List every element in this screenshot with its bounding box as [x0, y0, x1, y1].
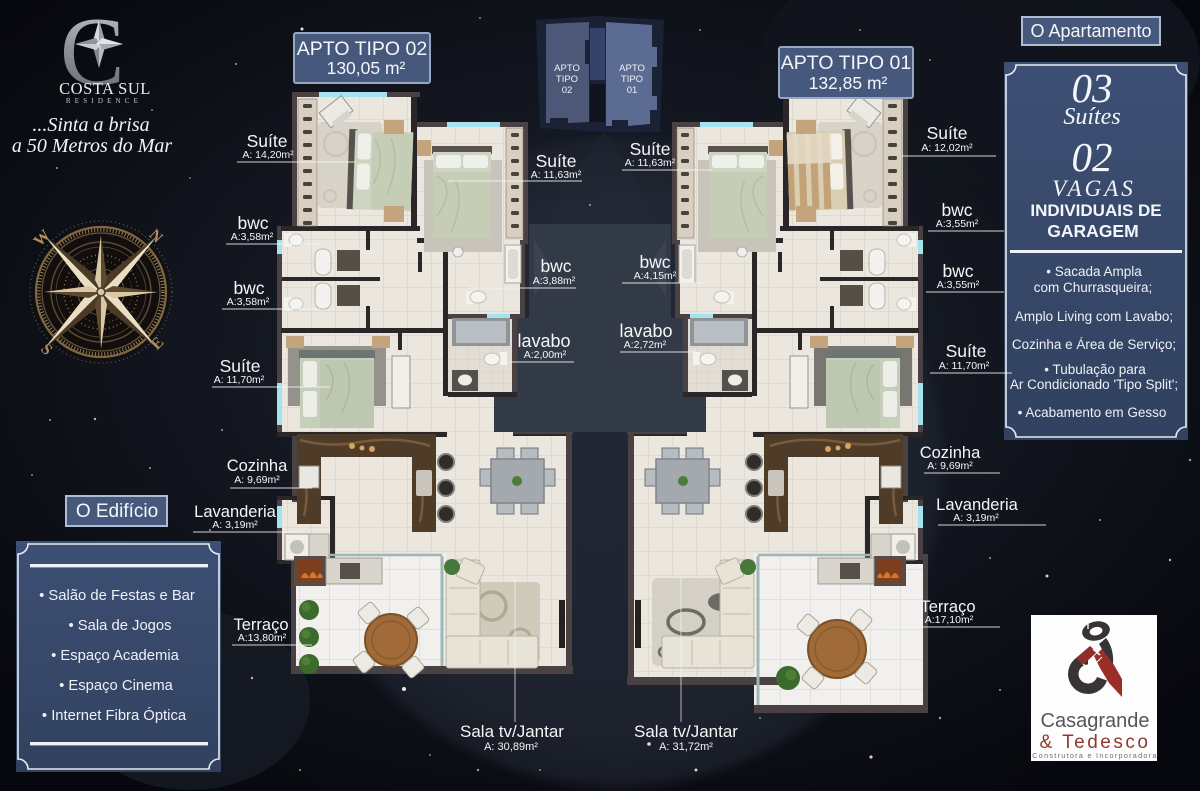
svg-text:• Internet Fibra Óptica: • Internet Fibra Óptica: [42, 707, 187, 724]
svg-text:Cozinha e Área de Serviço;: Cozinha e Área de Serviço;: [1012, 337, 1176, 352]
svg-text:COSTA SUL: COSTA SUL: [59, 79, 151, 98]
svg-text:A:17,10m²: A:17,10m²: [925, 614, 974, 626]
svg-text:APTO: APTO: [619, 63, 645, 74]
svg-text:A: 9,69m²: A: 9,69m²: [234, 474, 280, 486]
svg-text:lavabo: lavabo: [619, 321, 672, 341]
svg-text:TIPO: TIPO: [556, 74, 578, 85]
svg-text:APTO TIPO 01: APTO TIPO 01: [781, 52, 911, 74]
svg-text:02: 02: [562, 85, 573, 96]
svg-text:• Acabamento em Gesso: • Acabamento em Gesso: [1018, 405, 1167, 420]
svg-text:• Sala de Jogos: • Sala de Jogos: [68, 618, 171, 634]
svg-text:TIPO: TIPO: [621, 74, 643, 85]
svg-text:bwc: bwc: [233, 278, 264, 298]
svg-text:A:3,58m²: A:3,58m²: [227, 296, 270, 308]
svg-text:INDIVIDUAIS DE: INDIVIDUAIS DE: [1030, 201, 1161, 220]
svg-text:A:4,15m²: A:4,15m²: [634, 270, 677, 282]
svg-text:01: 01: [627, 85, 638, 96]
svg-text:Ar Condicionado 'Tipo Split';: Ar Condicionado 'Tipo Split';: [1010, 377, 1178, 392]
svg-text:APTO: APTO: [554, 63, 580, 74]
svg-text:A: 11,70m²: A: 11,70m²: [214, 374, 265, 386]
svg-text:GARAGEM: GARAGEM: [1047, 221, 1138, 241]
svg-text:A: 14,20m²: A: 14,20m²: [242, 149, 294, 161]
svg-text:APTO TIPO 02: APTO TIPO 02: [297, 38, 427, 60]
svg-text:O Apartamento: O Apartamento: [1030, 21, 1151, 41]
svg-text:...Sinta a brisa: ...Sinta a brisa: [32, 114, 149, 136]
svg-text:• Salão de Festas e Bar: • Salão de Festas e Bar: [39, 588, 195, 604]
svg-text:Casagrande: Casagrande: [1041, 710, 1150, 732]
svg-text:• Espaço Academia: • Espaço Academia: [51, 648, 180, 664]
svg-text:bwc: bwc: [237, 213, 268, 233]
svg-text:A:3,55m²: A:3,55m²: [937, 279, 980, 291]
svg-text:Suíte: Suíte: [536, 151, 577, 171]
svg-text:bwc: bwc: [941, 200, 972, 220]
svg-text:A:3,55m²: A:3,55m²: [936, 218, 979, 230]
svg-text:Cozinha: Cozinha: [227, 457, 288, 475]
svg-text:Suíte: Suíte: [946, 341, 987, 361]
svg-text:A:3,88m²: A:3,88m²: [533, 275, 576, 287]
svg-text:bwc: bwc: [540, 256, 571, 276]
svg-text:132,85 m²: 132,85 m²: [809, 73, 888, 93]
svg-text:A: 3,19m²: A: 3,19m²: [212, 519, 258, 531]
svg-text:Sala tv/Jantar: Sala tv/Jantar: [460, 722, 564, 741]
svg-text:Suítes: Suítes: [1063, 104, 1120, 130]
svg-text:A: 11,63m²: A: 11,63m²: [625, 157, 676, 169]
svg-text:• Espaço Cinema: • Espaço Cinema: [59, 678, 174, 694]
svg-text:Sala tv/Jantar: Sala tv/Jantar: [634, 722, 738, 741]
svg-text:Suíte: Suíte: [630, 139, 671, 159]
svg-text:Suíte: Suíte: [927, 123, 968, 143]
svg-text:130,05 m²: 130,05 m²: [327, 58, 406, 78]
svg-text:a 50 Metros do Mar: a 50 Metros do Mar: [12, 135, 173, 157]
svg-text:A:13,80m²: A:13,80m²: [238, 632, 287, 644]
svg-text:A: 30,89m²: A: 30,89m²: [484, 741, 538, 753]
svg-text:Amplo Living com Lavabo;: Amplo Living com Lavabo;: [1015, 309, 1173, 324]
svg-text:• Sacada Ampla: • Sacada Ampla: [1046, 264, 1142, 279]
svg-text:• Tubulação para: • Tubulação para: [1044, 362, 1146, 377]
svg-text:& Tedesco: & Tedesco: [1040, 732, 1151, 753]
svg-text:RESIDENCE: RESIDENCE: [66, 97, 142, 105]
svg-text:O Edifício: O Edifício: [76, 501, 158, 522]
svg-text:com Churrasqueira;: com Churrasqueira;: [1034, 280, 1153, 295]
svg-text:A: 9,69m²: A: 9,69m²: [927, 460, 973, 472]
svg-text:VAGAS: VAGAS: [1052, 176, 1136, 201]
svg-text:Suíte: Suíte: [220, 356, 261, 376]
svg-text:A: 31,72m²: A: 31,72m²: [659, 741, 713, 753]
svg-text:bwc: bwc: [942, 261, 973, 281]
svg-text:A: 3,19m²: A: 3,19m²: [953, 512, 999, 524]
svg-text:02: 02: [1072, 134, 1113, 180]
svg-text:A: 11,70m²: A: 11,70m²: [939, 360, 990, 372]
svg-text:A:3,58m²: A:3,58m²: [231, 231, 274, 243]
svg-text:A:2,00m²: A:2,00m²: [524, 349, 567, 361]
svg-text:Construtora e Incorporadora: Construtora e Incorporadora: [1032, 751, 1157, 760]
svg-text:Suíte: Suíte: [247, 131, 288, 151]
svg-text:bwc: bwc: [639, 252, 670, 272]
svg-text:A: 12,02m²: A: 12,02m²: [921, 142, 973, 154]
svg-text:A: 11,63m²: A: 11,63m²: [531, 169, 582, 181]
svg-text:A:2,72m²: A:2,72m²: [624, 339, 667, 351]
svg-text:lavabo: lavabo: [517, 331, 570, 351]
